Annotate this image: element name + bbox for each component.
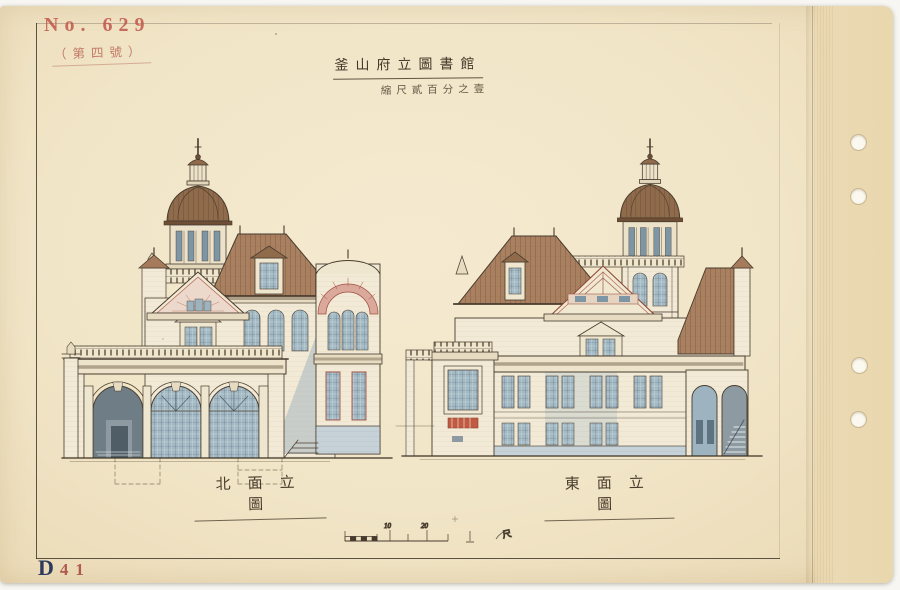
- binding-strip: [806, 6, 893, 583]
- east-elevation-drawing: [396, 139, 762, 459]
- archive-number-stamp: No. 629: [44, 14, 150, 37]
- east-left-bay: [406, 342, 498, 456]
- drawing-title: 釜山府立圖書館: [333, 53, 483, 80]
- plate-number: 41: [60, 560, 91, 579]
- north-left-wing: [62, 342, 80, 458]
- scanned-sheet: 10 20 尺 No. 629 （第四號） 釜山府立圖書館 縮尺貳百分之壹 北面…: [0, 0, 900, 590]
- plate-number-stamp: D41: [38, 555, 91, 581]
- scale-unit-label: 尺: [501, 528, 512, 540]
- north-elevation-drawing: [62, 139, 392, 486]
- east-dome: [617, 139, 682, 264]
- punch-hole: [851, 135, 866, 150]
- binding-crease-texture: [814, 6, 834, 583]
- east-arcade: [686, 370, 748, 456]
- binding-crease-line: [812, 6, 813, 583]
- north-dome: [164, 139, 232, 269]
- scale-tick-label: 10: [384, 522, 392, 530]
- caption-east-elevation: 東面立圖: [544, 471, 675, 522]
- punch-hole: [851, 412, 866, 427]
- north-arched-windows: [244, 310, 308, 351]
- north-arch-bay: [314, 250, 382, 454]
- drawing-scale-note: 縮尺貳百分之壹: [370, 81, 500, 98]
- caption-north-elevation: 北面立圖: [193, 470, 326, 521]
- scale-tick-label: 20: [421, 522, 429, 530]
- east-parapet: [566, 256, 684, 267]
- punch-hole: [851, 189, 866, 204]
- drawing-paper: 10 20 尺 No. 629 （第四號） 釜山府立圖書館 縮尺貳百分之壹 北面…: [0, 6, 893, 583]
- punch-hole: [852, 358, 867, 373]
- handwritten-annotation: （第四號）: [52, 40, 151, 66]
- scale-bar: 10 20 尺: [345, 516, 512, 542]
- north-portico: [64, 346, 318, 458]
- plate-letter: D: [38, 555, 54, 580]
- east-right-roof: [678, 248, 753, 356]
